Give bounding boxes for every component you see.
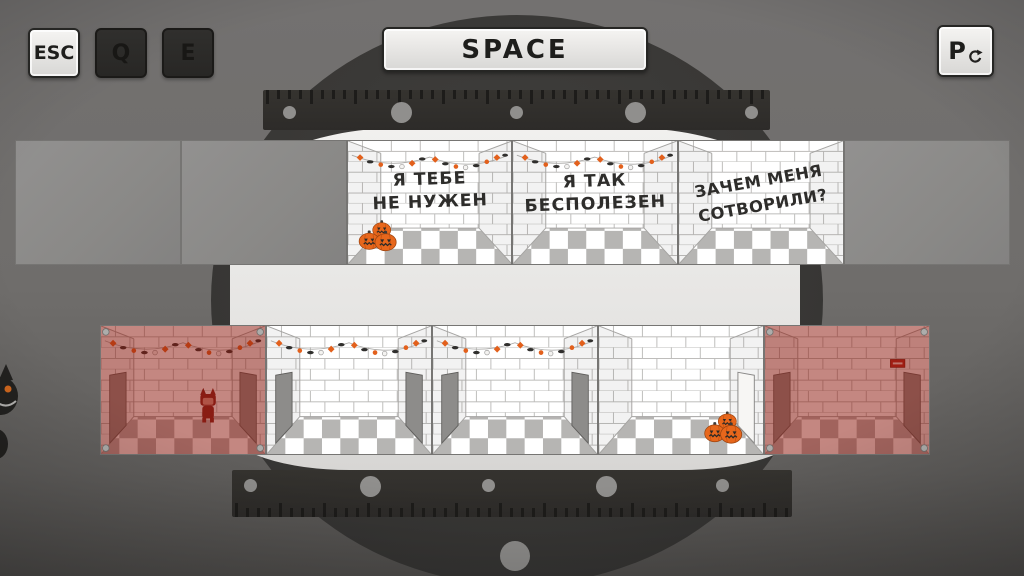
e-key-label: E	[180, 41, 195, 66]
red-room-left[interactable]	[100, 325, 266, 455]
empty-room-panel-2[interactable]	[181, 140, 347, 265]
edge-creature	[0, 358, 30, 468]
wall-message-line1: Я ТЕБЕ	[392, 168, 467, 190]
space-key-button[interactable]: SPACE	[382, 27, 648, 72]
bottom-room-row	[100, 325, 930, 455]
message-room-1[interactable]: Я ТЕБЕ НЕ НУЖЕН	[347, 140, 513, 265]
ruler-dot	[625, 102, 646, 123]
creature-eye-icon	[5, 386, 12, 393]
white-room-2[interactable]	[432, 325, 598, 455]
ruler-bottom	[232, 470, 792, 517]
esc-key-button[interactable]: ESC	[28, 28, 80, 78]
white-room-1[interactable]	[266, 325, 432, 455]
space-key-label: SPACE	[461, 35, 568, 65]
ruler-dot	[716, 479, 729, 492]
empty-room-panel-3[interactable]	[844, 140, 1010, 265]
esc-key-label: ESC	[34, 42, 75, 64]
restart-arrow-icon	[968, 49, 983, 64]
p-key-label: P	[948, 37, 966, 65]
q-key-button[interactable]: Q	[95, 28, 147, 78]
ruler-top	[263, 90, 770, 130]
red-tint-overlay	[765, 326, 929, 454]
e-key-button[interactable]: E	[162, 28, 214, 78]
game-viewport: Я ТЕБЕ НЕ НУЖЕН Я ТАК БЕСПОЛЕЗЕН ЗАЧЕМ М…	[0, 0, 1024, 576]
red-room-right[interactable]	[764, 325, 930, 455]
ruler-dot	[244, 479, 257, 492]
message-room-3[interactable]: ЗАЧЕМ МЕНЯ СОТВОРИЛИ?	[678, 140, 844, 265]
ruler-dot	[596, 476, 617, 497]
ruler-dot	[510, 106, 523, 119]
top-room-row: Я ТЕБЕ НЕ НУЖЕН Я ТАК БЕСПОЛЕЗЕН ЗАЧЕМ М…	[15, 140, 1010, 265]
wall-message-line1: Я ТАК	[563, 170, 627, 192]
white-room-3[interactable]	[598, 325, 764, 455]
ruler-dot	[482, 479, 495, 492]
red-tint-overlay	[101, 326, 265, 454]
ruler-dot	[745, 106, 758, 119]
ruler-dot	[360, 476, 381, 497]
vault-bottom-dot	[500, 541, 530, 571]
ruler-dot	[391, 102, 412, 123]
wall-message-line2: НЕ НУЖЕН	[372, 190, 488, 214]
ruler-dot	[283, 106, 296, 119]
restart-key-button[interactable]: P	[937, 25, 994, 77]
empty-room-panel-1[interactable]	[15, 140, 181, 265]
q-key-label: Q	[112, 41, 131, 66]
message-room-2[interactable]: Я ТАК БЕСПОЛЕЗЕН	[512, 140, 678, 265]
